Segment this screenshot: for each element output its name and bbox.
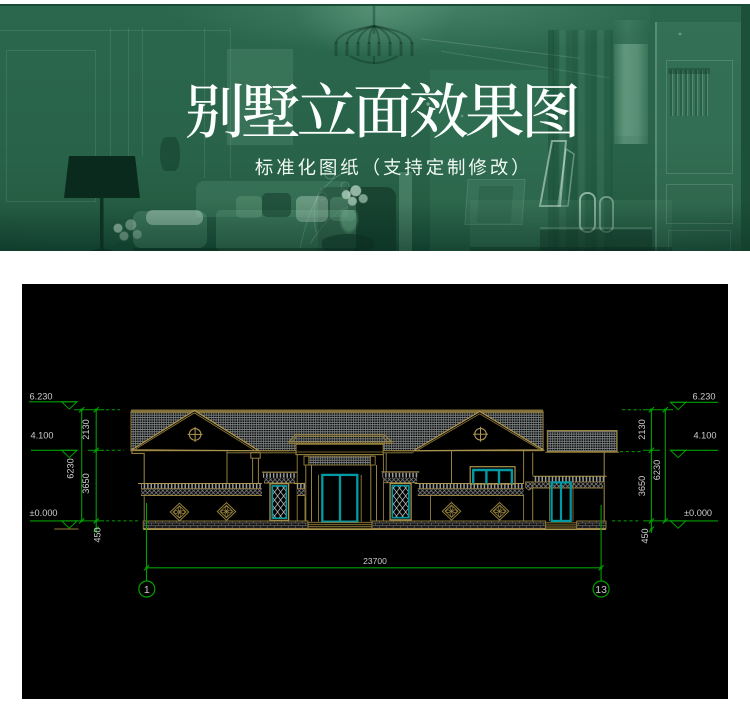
svg-text:6.230: 6.230 — [693, 391, 716, 401]
svg-text:3650: 3650 — [637, 476, 647, 496]
svg-text:6.230: 6.230 — [30, 391, 53, 401]
svg-text:450: 450 — [93, 527, 103, 542]
svg-text:1: 1 — [144, 584, 150, 596]
svg-text:2130: 2130 — [81, 419, 91, 439]
svg-text:450: 450 — [640, 528, 650, 543]
svg-text:±0.000: ±0.000 — [684, 508, 712, 518]
svg-text:4.100: 4.100 — [31, 431, 54, 441]
svg-text:4.100: 4.100 — [694, 431, 717, 441]
svg-text:3650: 3650 — [81, 473, 91, 493]
svg-text:13: 13 — [595, 584, 607, 596]
svg-text:2130: 2130 — [637, 419, 647, 439]
svg-text:6230: 6230 — [652, 460, 662, 480]
svg-text:23700: 23700 — [363, 556, 387, 566]
svg-text:±0.000: ±0.000 — [30, 508, 58, 518]
svg-text:6230: 6230 — [66, 458, 76, 478]
